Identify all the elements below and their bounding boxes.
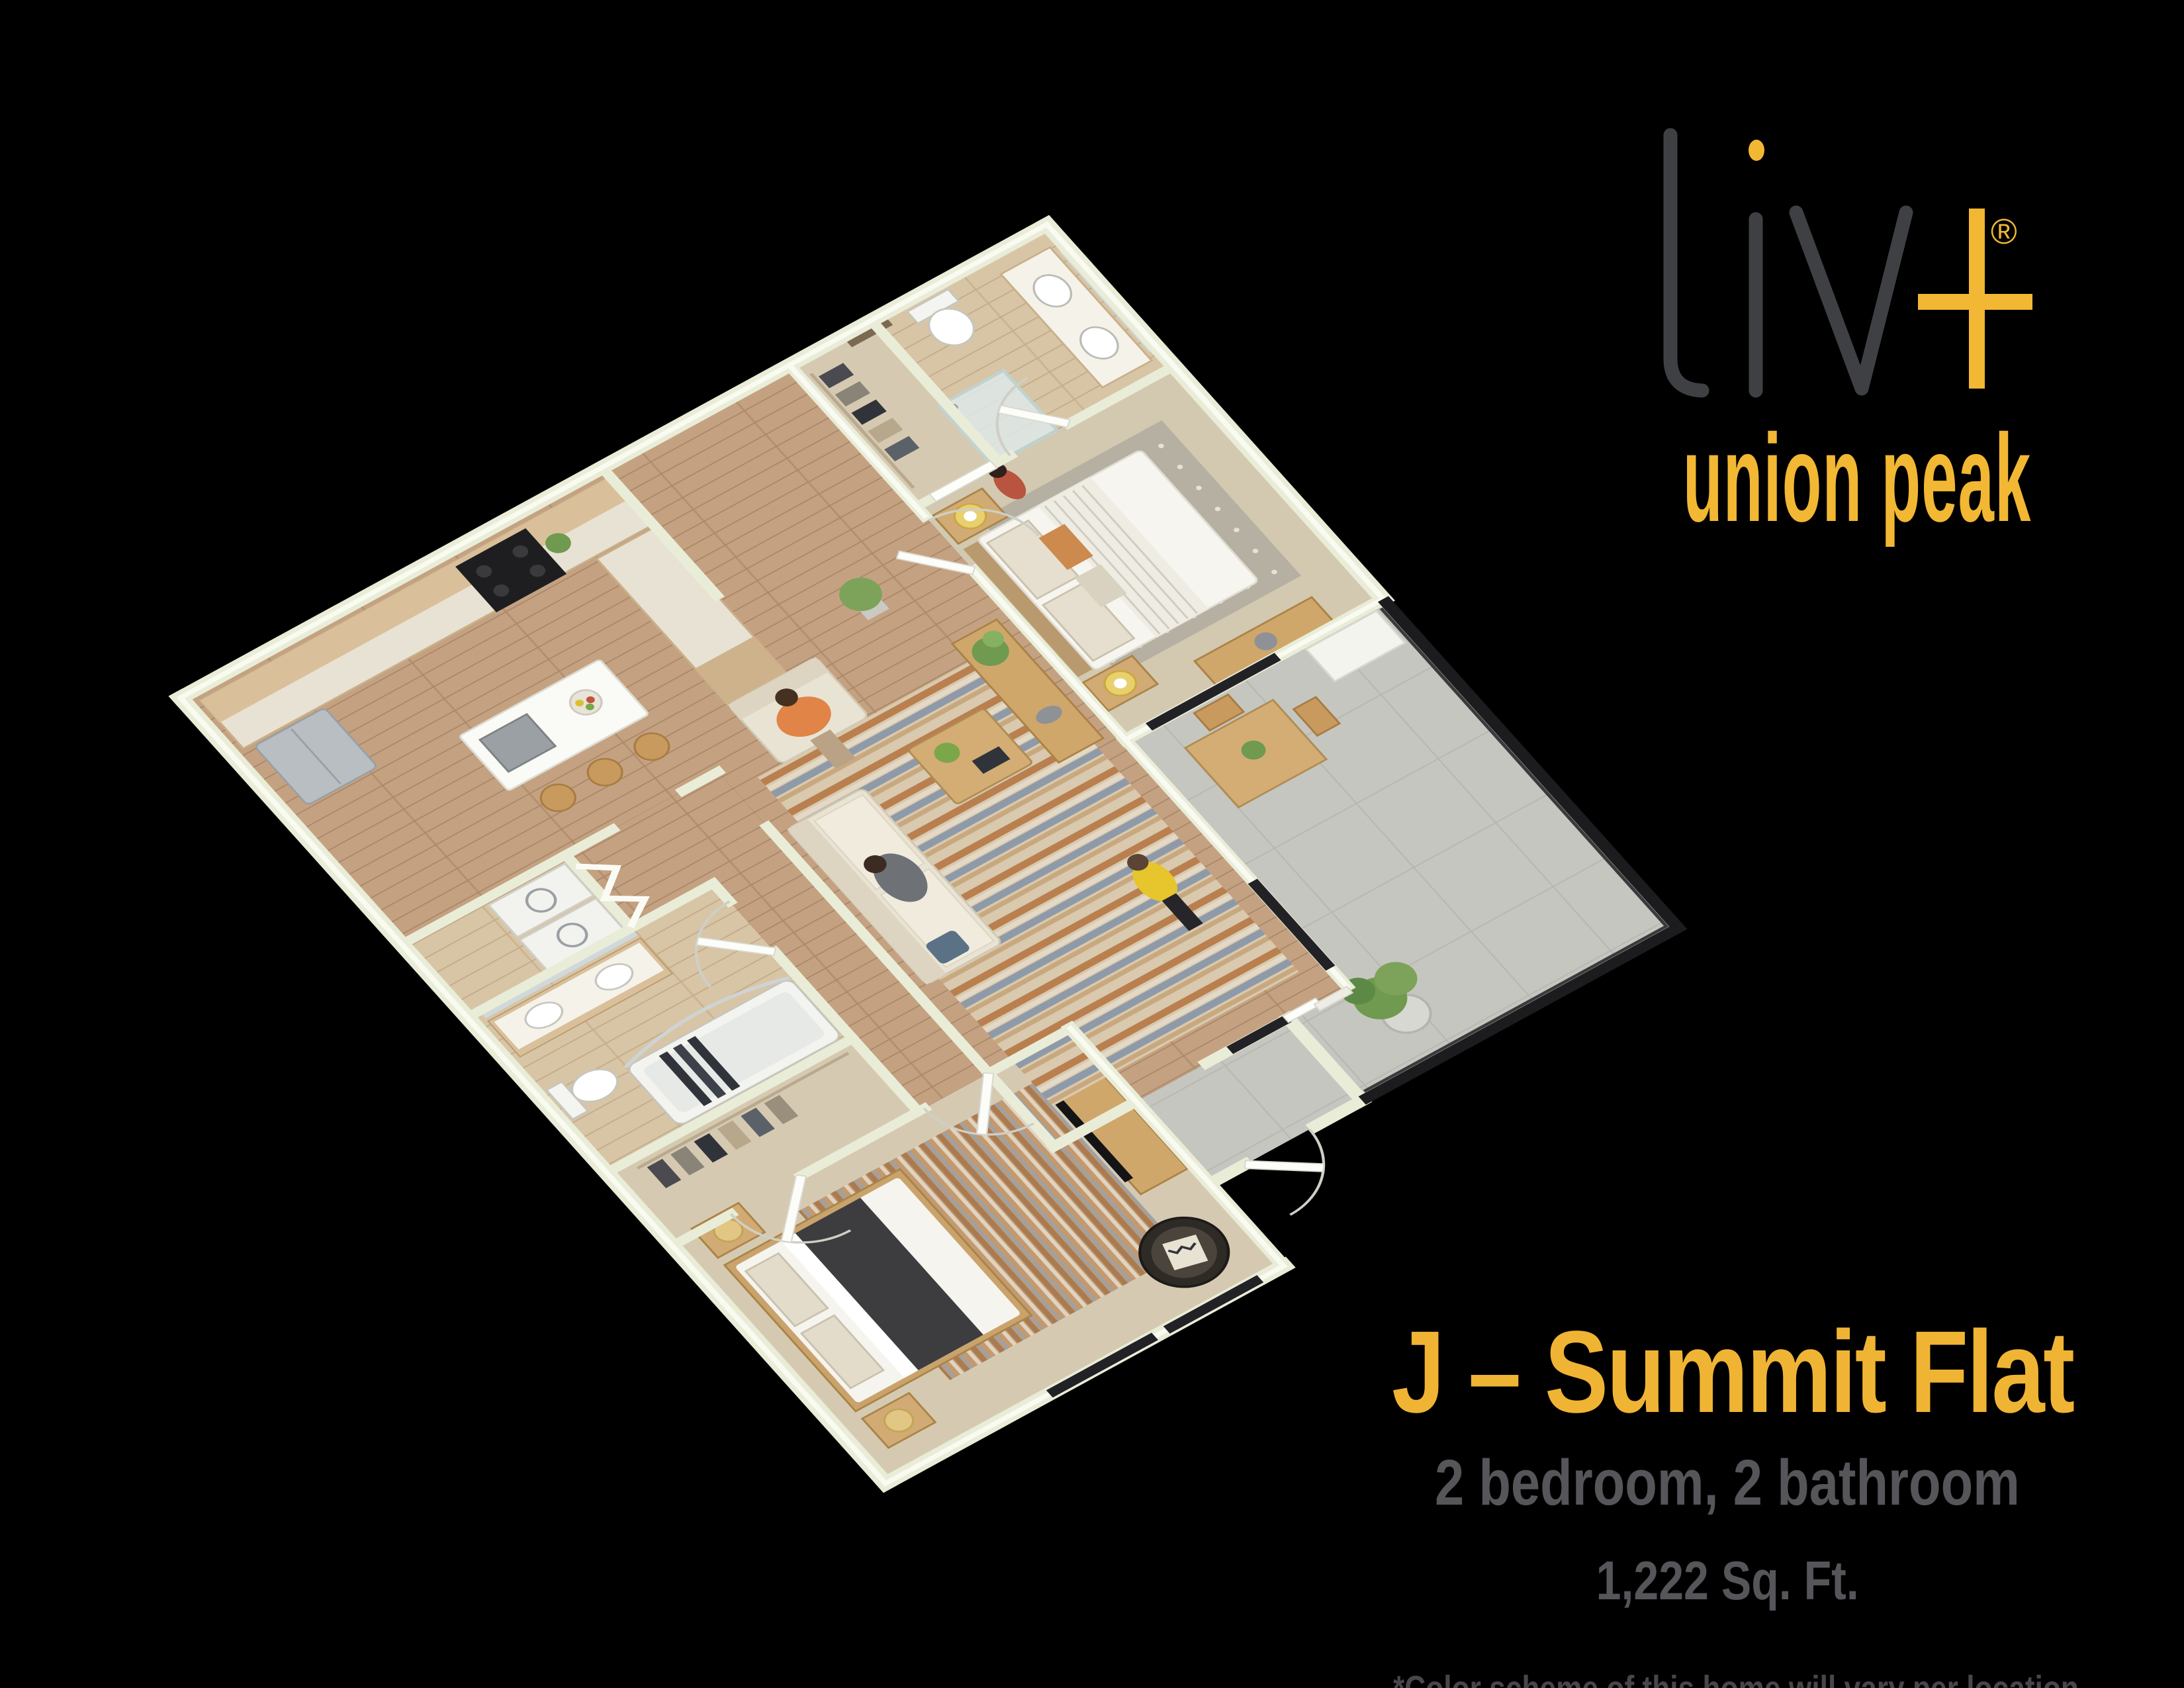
floor-plan-name: J – Summit Flat [1317, 1314, 2138, 1430]
apartment-axonometric-group [181, 224, 1756, 1487]
liv-plus-logo: ® union peak [1628, 99, 2091, 602]
square-footage: 1,222 Sq. Ft. [1317, 1553, 2138, 1608]
letter-l [1670, 135, 1702, 391]
title-block: J – Summit Flat 2 bedroom, 2 bathroom 1,… [1317, 1314, 2138, 1688]
entry-door [1245, 1160, 1324, 1172]
disclaimer-line-1: *Color scheme of this home will vary per… [1393, 1664, 2087, 1688]
bed-bath-specs: 2 bedroom, 2 bathroom [1317, 1450, 2138, 1515]
i-dot-icon [1749, 140, 1764, 161]
letter-v [1796, 212, 1906, 389]
liv-logotype [1670, 135, 1906, 391]
marketing-floorplan-page: ® union peak J – Summit Flat 2 bedroom, … [0, 0, 2184, 1688]
disclaimer-text: *Color scheme of this home will vary per… [1317, 1664, 2138, 1688]
registered-mark: ® [1991, 212, 2017, 252]
sub-brand-wordmark: union peak [1683, 408, 2031, 547]
